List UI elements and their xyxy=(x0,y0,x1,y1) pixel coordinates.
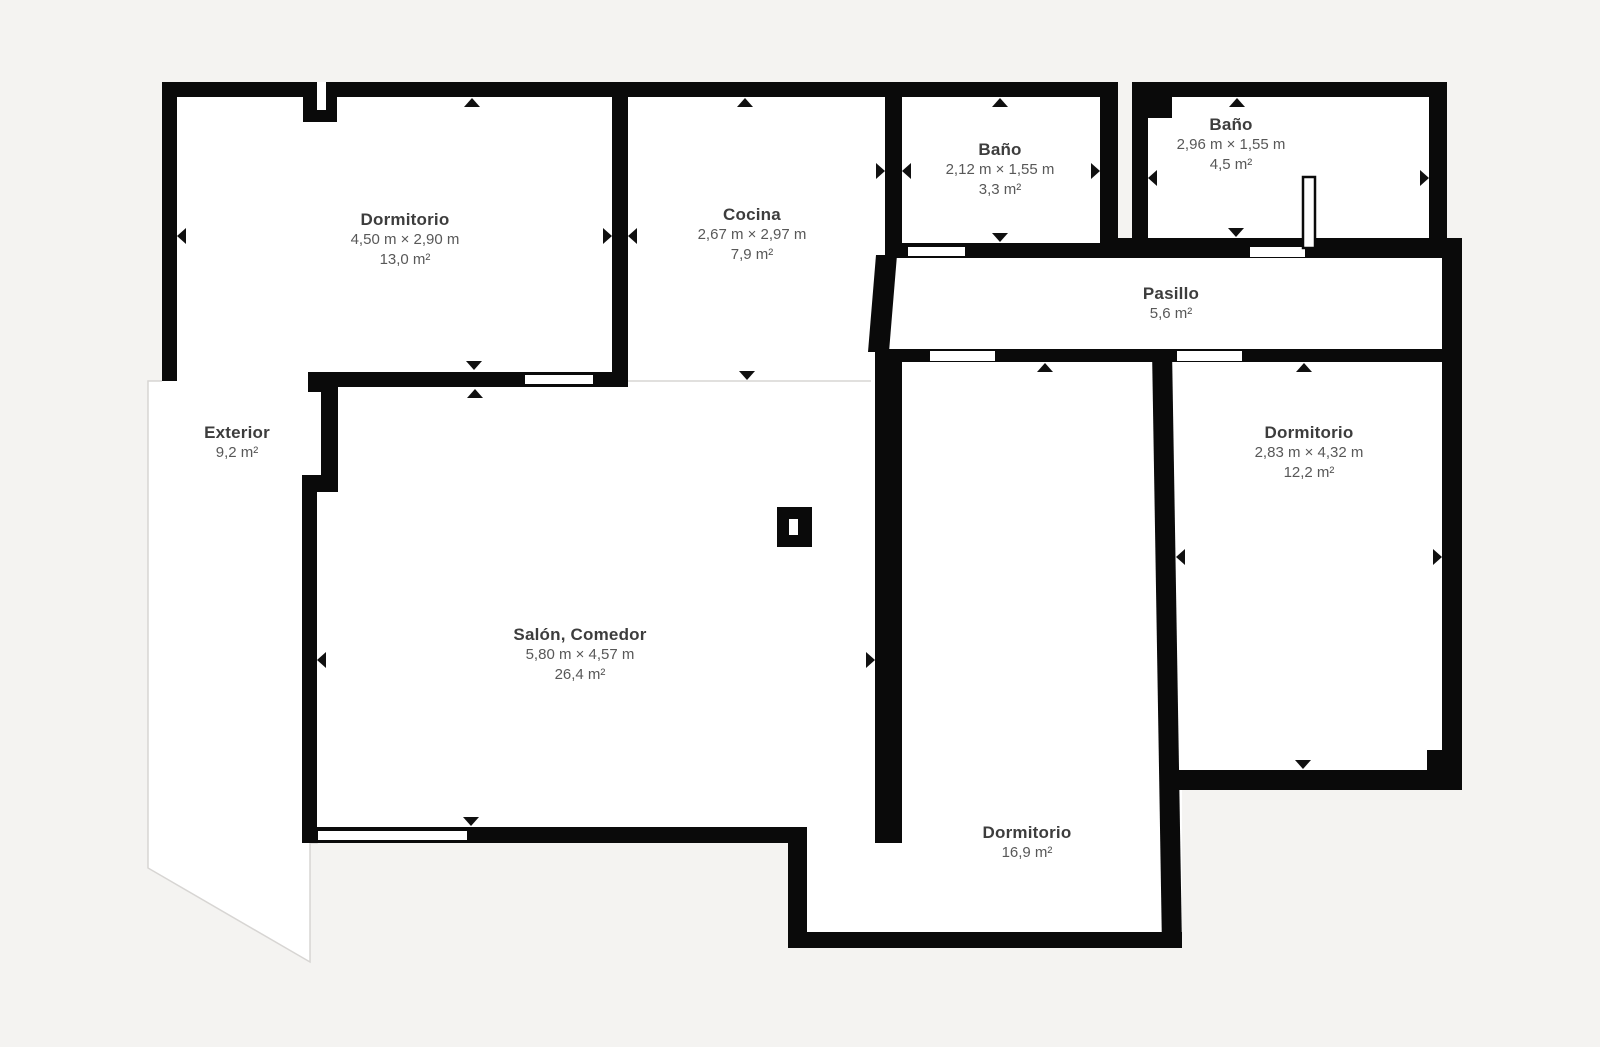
door-bano-1 xyxy=(908,247,965,256)
window-dormitorio-3 xyxy=(930,351,995,361)
pillar-slot xyxy=(789,519,798,535)
window-salon xyxy=(318,831,467,840)
door-bano-2 xyxy=(1250,247,1305,257)
door-leaf-bano-2 xyxy=(1303,177,1315,248)
floorplan-drawing xyxy=(0,0,1600,1047)
wall-slot xyxy=(317,82,326,110)
floorplan-canvas: Dormitorio 4,50 m × 2,90 m 13,0 m² Cocin… xyxy=(0,0,1600,1047)
room-floor-bano-1 xyxy=(887,82,1118,258)
room-floor-dormitorio-2 xyxy=(1152,349,1462,790)
door-dormitorio-2 xyxy=(1177,351,1242,361)
room-floor-bano-2 xyxy=(1132,82,1447,258)
room-floor-dormitorio-3 xyxy=(788,349,1182,948)
window-dormitorio-1 xyxy=(525,375,593,384)
exterior-floor xyxy=(148,381,321,962)
room-floor-dormitorio-1-cocina xyxy=(162,82,903,387)
